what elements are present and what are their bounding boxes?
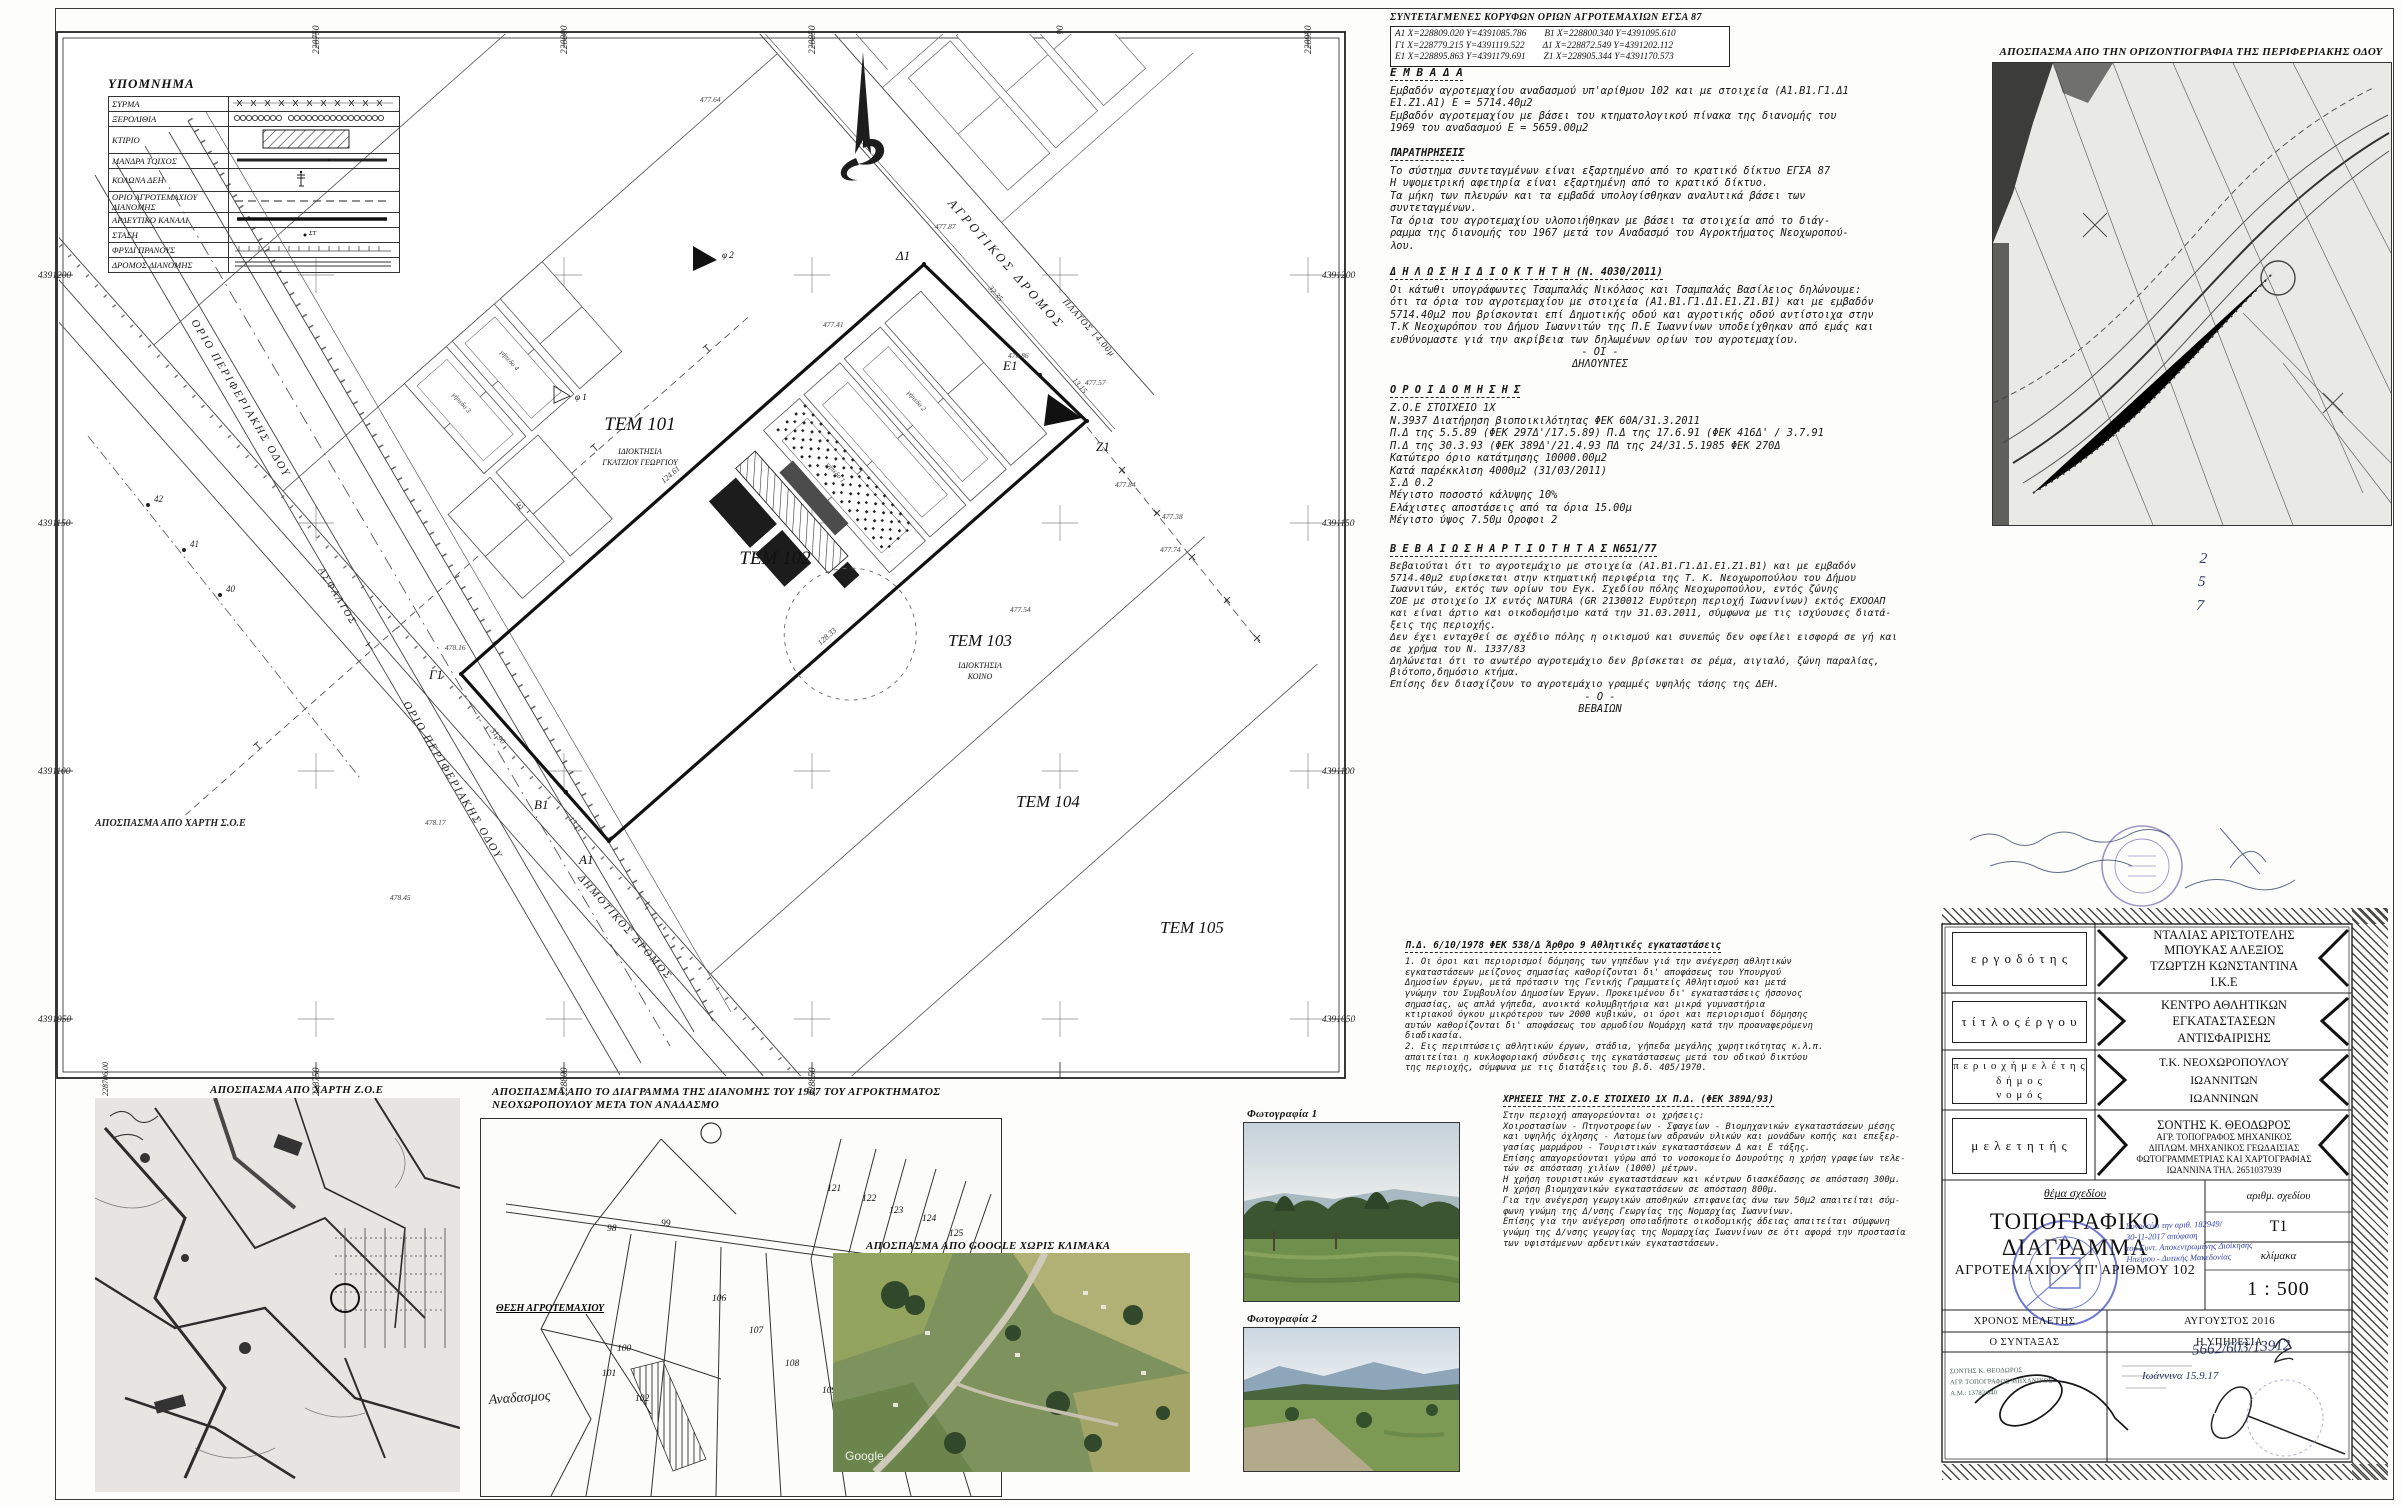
svg-text:478.16: 478.16 — [445, 643, 466, 652]
pd-title: Π.Δ. 6/10/1978 ΦΕΚ 538/Δ Άρθρο 9 Αθλητικ… — [1405, 940, 1721, 953]
svg-text:108: 108 — [785, 1359, 800, 1369]
zoe-uses-title: ΧΡΗΣΕΙΣ ΤΗΣ Ζ.Ο.Ε ΣΤΟΙΧΕΙΟ 1Χ Π.Δ. (ΦΕΚ … — [1503, 1094, 1774, 1107]
legend-label: ΞΕΡΟΛΙΘΙΑ — [109, 112, 229, 127]
google-caption: ΑΠΟΣΠΑΣΜΑ ΑΠΟ GOOGLE ΧΩΡΙΣ ΚΛΙΜΑΚΑ — [866, 1240, 1110, 1252]
date-handwritten: Ιωάννινα 15.9.17 — [2142, 1370, 2218, 1382]
coord-cell: Δ1 Χ=228872.549 Υ=4391202.112 — [1543, 41, 1673, 53]
svg-text:40: 40 — [226, 584, 236, 594]
svg-text:ΣΤ: ΣΤ — [308, 231, 317, 237]
svg-text:ΤΕΜ 104: ΤΕΜ 104 — [1016, 792, 1080, 811]
integrity-cert-title: Β Ε Β Α Ι Ω Σ Η Α Ρ Τ Ι Ο Τ Η Τ Α Σ Ν651… — [1390, 543, 1657, 557]
svg-text:ΤΕΜ 105: ΤΕΜ 105 — [1160, 918, 1224, 937]
owner-declaration-title: Δ Η Λ Ω Σ Η Ι Δ Ι Ο Κ Τ Η Τ Η (Ν. 4030/2… — [1390, 266, 1663, 280]
drawing-subtitle: ΑΓΡΟΤΕΜΑΧΙΟΥ ΥΠ' ΑΡΙΘΜΟΥ 102 — [1950, 1263, 2200, 1279]
grid-label: 228800 — [560, 25, 570, 54]
svg-text:125: 125 — [949, 1229, 964, 1239]
svg-text:98: 98 — [607, 1224, 617, 1234]
pd-text: 1. Οι όροι και περιορισμοί δόμησης των γ… — [1405, 957, 1855, 1074]
remarks-text: Το σύστημα συντεταγμένων είναι εξαρτημέν… — [1390, 165, 1938, 252]
svg-text:Ε1: Ε1 — [1002, 358, 1017, 373]
notes-column: Ε Μ Β Α Δ Α Εμβαδόν αγροτεμαχίου αναδασμ… — [1390, 66, 1938, 715]
subject-label: θέμα σχεδίου — [1950, 1186, 2200, 1201]
client-value: ΝΤΑΛΙΑΣ ΑΡΙΣΤΟΤΕΛΗΣ ΜΠΟΥΚΑΣ ΑΛΕΞΙΟΣ ΤΖΩΡ… — [2130, 926, 2318, 992]
google-watermark: Google — [845, 1449, 884, 1463]
owner-declaration-text: Οι κάτωθι υπογράφωντες Τσαμπαλάς Νικόλαο… — [1390, 284, 1938, 346]
svg-text:41: 41 — [190, 539, 199, 549]
areas-text: Εμβαδόν αγροτεμαχίου αναδασμού υπ'αρίθμο… — [1390, 85, 1938, 135]
allotment-boundary-symbol — [229, 192, 400, 213]
certifier-label: ΒΕΒΑΙΩΝ — [1390, 703, 1810, 715]
svg-text:99: 99 — [661, 1219, 671, 1229]
svg-text:ΙΔΙΟΚΤΗΣΙΑ: ΙΔΙΟΚΤΗΣΙΑ — [957, 661, 1002, 670]
ortho-caption: ΑΠΟΣΠΑΣΜΑ ΑΠΟ ΤΗΝ ΟΡΙΖΟΝΤΙΟΓΡΑΦΙΑ ΤΗΣ ΠΕ… — [1992, 46, 2390, 58]
svg-text:ΤΕΜ 103: ΤΕΜ 103 — [948, 631, 1012, 650]
legend-label: ΣΤΑΣΗ — [109, 228, 229, 243]
svg-text:ΙΔΙΟΚΤΗΣΙΑ: ΙΔΙΟΚΤΗΣΙΑ — [617, 447, 662, 456]
grid-label: 4391150 — [38, 519, 71, 529]
building-terms-title: Ο Ρ Ο Ι Δ Ο Μ Η Σ Η Σ — [1390, 384, 1520, 398]
pd-block: Π.Δ. 6/10/1978 ΦΕΚ 538/Δ Άρθρο 9 Αθλητικ… — [1405, 940, 1855, 1074]
svg-text:Ζ1: Ζ1 — [1096, 439, 1110, 454]
author-label: Ο ΣΥΝΤΑΞΑΣ — [1942, 1332, 2107, 1352]
legend-label: ΦΡΥΔΙ ΠΡΑΝΟΥΣ — [109, 243, 229, 258]
power-pole-symbol — [229, 169, 400, 192]
grid-label: 4391150 — [1322, 519, 1355, 529]
svg-text:φ 1: φ 1 — [575, 392, 587, 402]
zoe-map-caption: ΑΠΟΣΠΑΣΜΑ ΑΠΟ ΧΑΡΤΗ Ζ.Ο.Ε — [210, 1084, 383, 1096]
photo2 — [1243, 1327, 1460, 1472]
coord-cell: Α1 Χ=228809.020 Υ=4391085.786 — [1395, 29, 1526, 41]
svg-text:107: 107 — [749, 1326, 765, 1336]
legend-label: ΣΥΡΜΑ — [109, 97, 229, 112]
allotment-road-symbol — [229, 258, 400, 273]
topographic-sheet: 228750 228800 228850 228900 228950 22870… — [0, 0, 2402, 1508]
svg-text:478.17: 478.17 — [425, 818, 446, 827]
certifier-dash: - Ο - — [1390, 691, 1810, 703]
svg-text:477.84: 477.84 — [1115, 480, 1136, 489]
grid-label: 4391200 — [1322, 271, 1356, 281]
grid-label: 4391100 — [38, 767, 71, 777]
coord-cell: Β1 Χ=228800.340 Υ=4391095.610 — [1544, 29, 1675, 41]
soe-note: ΑΠΟΣΠΑΣΜΑ ΑΠΟ ΧΑΡΤΗ Σ.Ο.Ε — [94, 818, 246, 829]
legend-label: ΔΡΟΜΟΣ ΔΙΑΝΟΜΗΣ — [109, 258, 229, 273]
coord-cell: Ε1 Χ=228895.863 Υ=4391179.691 — [1395, 52, 1526, 64]
legend-title: ΥΠΟΜΝΗΜΑ — [108, 76, 400, 92]
grid-label: 4391100 — [1322, 767, 1355, 777]
svg-text:Α1: Α1 — [578, 852, 593, 867]
svg-text:Β1: Β1 — [534, 797, 548, 812]
coordinates-block: ΣΥΝΤΕΤΑΓΜΕΝΕΣ ΚΟΡΥΦΩΝ ΟΡΙΩΝ ΑΓΡΟΤΕΜΑΧΙΩΝ… — [1390, 12, 1950, 67]
designer-label: μ ε λ ε τ η τ ή ς — [1952, 1118, 2087, 1174]
svg-text:ΤΕΜ 101: ΤΕΜ 101 — [604, 414, 675, 435]
building-symbol — [229, 127, 400, 154]
svg-text:42: 42 — [154, 494, 164, 504]
svg-text:φ 2: φ 2 — [722, 250, 734, 260]
svg-text:477.38: 477.38 — [1162, 512, 1183, 521]
svg-text:ΤΕΜ 102: ΤΕΜ 102 — [739, 548, 811, 569]
designer-details: ΑΓΡ. ΤΟΠΟΓΡΑΦΟΣ ΜΗΧΑΝΙΚΟΣ ΔΙΠΛΩΜ. ΜΗΧΑΝΙ… — [2130, 1132, 2318, 1176]
scale-value: 1 : 500 — [2207, 1272, 2350, 1306]
zoe-map — [95, 1098, 460, 1492]
svg-text:476.86: 476.86 — [1008, 351, 1029, 360]
declarants-label: ΔΗΛΟΥΝΤΕΣ — [1390, 358, 1810, 370]
legend: ΥΠΟΜΝΗΜΑ ΣΥΡΜΑ ΞΕΡΟΛΙΘΙΑ ΚΤΙΡΙΟ ΜΑΝΔΡΑ Τ… — [108, 76, 400, 273]
drawing-number-label: αριθμ. σχεδίου — [2207, 1182, 2350, 1210]
dianomi-caption-line2: ΝΕΟΧΩΡΟΠΟΥΛΟΥ ΜΕΤΑ ΤΟΝ ΑΝΑΔΑΣΜΟ — [492, 1099, 1052, 1112]
legend-label: ΚΤΙΡΙΟ — [109, 127, 229, 154]
coordinates-title: ΣΥΝΤΕΤΑΓΜΕΝΕΣ ΚΟΡΥΦΩΝ ΟΡΙΩΝ ΑΓΡΟΤΕΜΑΧΙΩΝ… — [1390, 12, 1950, 23]
coord-cell: Ζ1 Χ=228905.344 Υ=4391170.573 — [1544, 52, 1674, 64]
svg-text:477.87: 477.87 — [935, 222, 956, 231]
titleblock: ε ρ γ ο δ ό τ η ς τ ί τ λ ο ς έ ρ γ ο υ … — [1930, 818, 2392, 1508]
top-handwriting — [1970, 828, 2295, 890]
google-aerial: Google — [833, 1253, 1190, 1472]
grid-label: 4391050 — [1322, 1015, 1356, 1025]
svg-text:121: 121 — [827, 1184, 841, 1194]
coordinates-table: Α1 Χ=228809.020 Υ=4391085.786Β1 Χ=228800… — [1390, 26, 1730, 67]
study-time-label: ΧΡΟΝΟΣ ΜΕΛΕΤΗΣ — [1942, 1310, 2107, 1332]
grid-label: 4391050 — [38, 1015, 72, 1025]
declarants-dash: - ΟΙ - — [1390, 346, 1810, 358]
svg-text:Δ1: Δ1 — [895, 248, 910, 263]
svg-text:477.64: 477.64 — [700, 95, 721, 104]
photo2-caption: Φωτογραφία 2 — [1247, 1313, 1317, 1325]
irrigation-canal-symbol — [229, 213, 400, 228]
top-stamp-icon — [2102, 826, 2182, 906]
ortho-map — [1992, 62, 2392, 526]
slope-edge-symbol — [229, 243, 400, 258]
photo1 — [1243, 1122, 1460, 1302]
study-area-value: Τ.Κ. ΝΕΟΧΩΡΟΠΟΥΛΟΥ ΙΩΑΝΝΙΤΩΝ ΙΩΑΝΝΙΝΩΝ — [2130, 1052, 2318, 1108]
svg-text:ΓΚΑΤΖΙΟΥ ΓΕΩΡΓΙΟΥ: ΓΚΑΤΖΙΟΥ ΓΕΩΡΓΙΟΥ — [601, 458, 679, 467]
grid-label: 228750 — [312, 25, 322, 54]
legend-label: ΜΑΝΔΡΑ ΤΟΙΧΟΣ — [109, 154, 229, 169]
grid-label: 228850 — [808, 25, 818, 54]
dianomi-caption-line1: ΑΠΟΣΠΑΣΜΑ ΑΠΟ ΤΟ ΔΙΑΓΡΑΜΜΑ ΤΗΣ ΔΙΑΝΟΜΗΣ … — [492, 1086, 1052, 1099]
anadasmos-label: Αναδασμος — [487, 1389, 551, 1408]
legend-label: ΚΟΛΩΝΑ ΔΕΗ — [109, 169, 229, 192]
svg-text:Γ1: Γ1 — [428, 667, 443, 682]
svg-text:ΚΟΙΝΟ: ΚΟΙΝΟ — [967, 672, 993, 681]
svg-text:102: 102 — [635, 1394, 650, 1404]
svg-text:122: 122 — [862, 1194, 877, 1204]
svg-text:106: 106 — [712, 1294, 727, 1304]
station-symbol: ΣΤ — [229, 228, 400, 243]
project-title-label: τ ί τ λ ο ς έ ρ γ ο υ — [1952, 1001, 2087, 1043]
coord-cell: Γ1 Χ=228779.215 Υ=4391119.522 — [1395, 41, 1525, 53]
photo1-caption: Φωτογραφία 1 — [1247, 1108, 1317, 1120]
integrity-cert-text: Βεβαιούται ότι το αγροτεμάχιο με στοιχεί… — [1390, 561, 1938, 691]
svg-text:477.57: 477.57 — [1085, 378, 1106, 387]
zoe-uses-block: ΧΡΗΣΕΙΣ ΤΗΣ Ζ.Ο.Ε ΣΤΟΙΧΕΙΟ 1Χ Π.Δ. (ΦΕΚ … — [1503, 1094, 1933, 1249]
svg-text:477.41: 477.41 — [823, 320, 844, 329]
client-label: ε ρ γ ο δ ό τ η ς — [1952, 932, 2087, 986]
project-title-value: ΚΕΝΤΡΟ ΑΘΛΗΤΙΚΩΝ ΕΓΚΑΤΑΣΤΑΣΕΩΝ ΑΝΤΙΣΦΑΙΡ… — [2130, 994, 2318, 1049]
areas-title: Ε Μ Β Α Δ Α — [1390, 66, 1463, 81]
drystone-symbol — [229, 112, 400, 127]
engineer-stamp-text: ΣΟΝΤΗΣ Κ. ΘΕΟΔΩΡΟΣ ΑΓΡ. ΤΟΠΟΓΡΑΦΟΣ ΜΗΧΑΝ… — [1950, 1365, 2101, 1400]
grid-label: 4391200 — [38, 271, 72, 281]
svg-text:100: 100 — [617, 1344, 632, 1354]
wall-symbol — [229, 154, 400, 169]
building-terms-text: Ζ.Ο.Ε ΣΤΟΙΧΕΙΟ 1Χ Ν.3937 Διατήρηση βιοπο… — [1390, 402, 1938, 527]
parcel-location-label: ΘΕΣΗ ΑΓΡΟΤΕΜΑΧΙΟΥ — [496, 1303, 605, 1314]
study-area-label: π ε ρ ι ο χ ή μ ε λ έ τ η ς δ ή μ ο ς ν … — [1952, 1058, 2087, 1104]
grid-label: 228706.00 — [101, 1062, 110, 1096]
legend-label: ΑΡΔΕΥΤΙΚΟ ΚΑΝΑΛΙ — [109, 213, 229, 228]
svg-text:101: 101 — [602, 1369, 616, 1379]
svg-text:124: 124 — [922, 1214, 937, 1224]
grid-label: 228950 — [1304, 25, 1314, 54]
parcel-102-hatch — [631, 1361, 706, 1471]
svg-text:478.45: 478.45 — [390, 893, 411, 902]
remarks-title: ΠΑΡΑΤΗΡΗΣΕΙΣ — [1390, 147, 1464, 161]
dianomi-caption: ΑΠΟΣΠΑΣΜΑ ΑΠΟ ΤΟ ΔΙΑΓΡΑΜΜΑ ΤΗΣ ΔΙΑΝΟΜΗΣ … — [492, 1086, 1052, 1112]
legend-label: ΟΡΙΟ ΑΓΡΟΤΕΜΑΧΙΟΥ ΔΙΑΝΟΜΗΣ — [109, 192, 229, 213]
svg-text:123: 123 — [889, 1206, 904, 1216]
study-time-value: ΑΥΓΟΥΣΤΟΣ 2016 — [2107, 1310, 2352, 1332]
svg-text:477.54: 477.54 — [1010, 605, 1031, 614]
svg-text:477.74: 477.74 — [1160, 545, 1181, 554]
approval-stamp-note: Συνοδεύει την αριθ. 182949/ 30-11-2017 α… — [2125, 1215, 2356, 1265]
zoe-uses-text: Στην περιοχή απαγορεύονται οι χρήσεις: Χ… — [1503, 1111, 1933, 1249]
wire-fence-symbol — [229, 97, 400, 112]
